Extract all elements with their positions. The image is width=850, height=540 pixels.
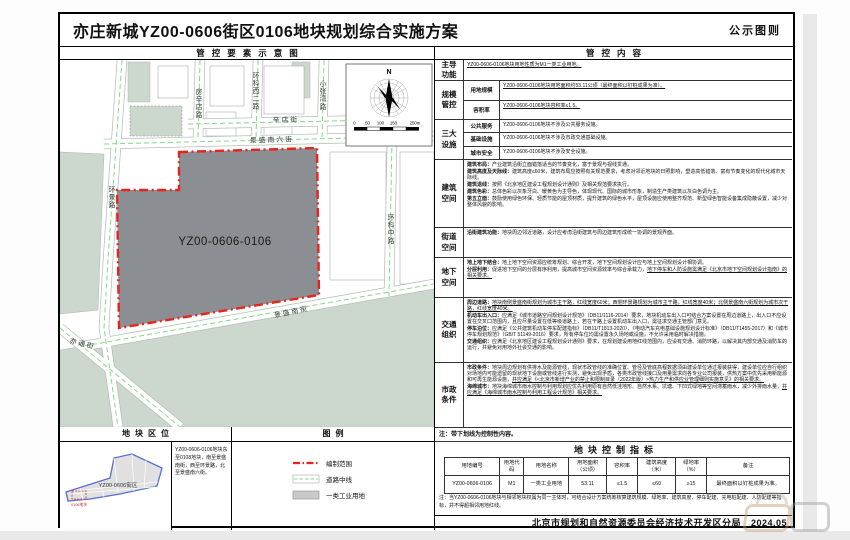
control-row-label: 建筑空间 [435,160,464,227]
control-elements-map: 050100150250m N 房辛店路环科西二路辛店街小张湾路景盛南六街环景路… [60,60,434,427]
location-panel-header: 地块区位 [60,427,232,441]
bottom-panel-headers: 地块区位 图例 [60,427,434,442]
bottom-panels: 0106地块 YZ00-0606街区 YZ00-0606-0106地块东至010… [60,442,434,530]
control-subrow: YZ00-0606-0106地块用地性质为M1一类工业用地。 [464,60,792,80]
control-row: 地下空间地上地下结合：地上地下空间资源应统筹规划、综合开发，地下空间规划设计应与… [435,258,792,298]
control-row-label: 主导功能 [435,60,464,80]
map-panel-header: 管控要素示意图 [60,47,434,60]
indicator-cell: ≥15 [676,476,707,494]
control-row-label: 规模管控 [435,81,464,119]
indicator-cell: YZ00-0606-0106 [445,476,500,494]
legend-item: 一类工业用地 [292,490,434,500]
indicator-col-header: 容积率 [607,458,638,476]
control-row: 建筑空间建筑布局：产业建筑沿街立面错落适当的节奏变化，富于景观与视线贯通。建筑高… [435,160,792,228]
control-row: 规模管控用地规模YZ00-0606-0106地块用地面积约53.11公顷（最终面… [435,81,792,120]
minimap-parcel-label: 0106地块 [71,502,87,507]
control-subrow: 城市安全YZ00-0606-0106地块不涉及安全设施。 [464,147,792,159]
north-label: N [386,69,391,76]
location-description: YZ00-0606-0106地块东至0108地块，南至景盛南街，西至环景路，北至… [172,442,232,530]
control-content-column: 管控内容 主导功能YZ00-0606-0106地块用地性质为M1一类工业用地。规… [434,47,792,530]
footer-bar: 北京市规划和自然资源委员会经济技术开发区分局2024.05 [435,515,792,530]
control-subrow-label: 公共服务 [464,120,500,132]
scan-edge-bottom [0,531,850,540]
control-text: 建筑布局：产业建筑沿街立面错落适当的节奏变化，富于景观与视线贯通。建筑高度及天际… [464,160,792,227]
map-svg: 050100150250m N 房辛店路环科西二路辛店街小张湾路景盛南六街环景路… [60,60,434,427]
location-minimap: 0106地块 YZ00-0606街区 [60,442,172,530]
scale-tick-label: 250m [410,121,421,126]
control-subrow-label: 容积率 [464,101,500,120]
street-label: 小张湾路 [320,79,327,111]
control-text: YZ00-0606-0106地块用地性质为M1一类工业用地。 [464,60,792,80]
red-dashdot-line-icon [292,458,320,468]
indicator-col-header: 用地代码 [500,458,524,476]
indicator-col-header: 建筑高度 （米） [638,458,676,476]
control-subrow: 公共服务YZ00-0606-0106地块不涉及公共服务设施。 [464,120,792,133]
location-minimap-svg: 0106地块 YZ00-0606街区 [60,442,171,530]
indicator-table-note: 注：当YZ00-0606-0106地块与相邻地块权属为同一主体时，可结合设计方案… [439,495,787,511]
control-row: 街道空间沿街建筑功能：地块周边邻近道路，设计应考虑沿街建筑与周边建筑形成统一协调… [435,228,792,258]
road-centerline-icon [292,474,320,484]
indicator-cell: 一类工业用地 [524,476,569,494]
control-subrow: 沿街建筑功能：地块周边邻近道路，设计应考虑沿街建筑与周边建筑形成统一协调的景观界… [464,228,792,257]
indicator-cell: 最终面积以钉桩成果为准。 [707,476,790,494]
control-row: 三大设施公共服务YZ00-0606-0106地块不涉及公共服务设施。基础设施YZ… [435,120,792,160]
sheet-type-label: 公示图则 [729,22,793,38]
scan-edge-right [803,14,817,540]
control-subrow: 地上地下结合：地上地下空间资源应统筹规划、综合开发，地下空间规划设计应与地上空间… [464,258,792,297]
issuing-agency: 北京市规划和自然资源委员会经济技术开发区分局 [532,518,741,528]
plan-sheet: 亦庄新城YZ00-0606街区0106地块规划综合实施方案 公示图则 管控要素示… [58,12,795,528]
legend-label: 道路中线 [326,474,352,484]
legend-panel-header: 图例 [232,427,434,441]
control-rows: 主导功能YZ00-0606-0106地块用地性质为M1一类工业用地。规模管控用地… [435,60,792,428]
indicator-cell: ≤1.5 [607,476,638,494]
control-text: 市政条件：地块周边规划有供排水及能源管线，现状市政管线的准确位置、管径及管底高程… [464,363,792,427]
map-column: 管控要素示意图 [60,47,434,530]
control-subrow: 周边道路：地块南侧景盛南街规划为城市主干路，红线宽度60米；西侧环景路规划为城市… [464,298,792,362]
control-row-label: 地下空间 [435,258,464,297]
control-subrow-label: 基础设施 [464,133,500,145]
control-subrow: 基础设施YZ00-0606-0106地块不涉及市政交通基础设施。 [464,133,792,146]
street-label: 环科中路 [388,214,395,245]
indicator-col-header: 用地编号 [445,458,500,476]
title-bar: 亦庄新城YZ00-0606街区0106地块规划综合实施方案 公示图则 [60,14,793,47]
minimap-district-label: YZ00-0606街区 [99,481,138,489]
control-text: YZ00-0606-0106地块用地面积约53.11公顷（最终面积以钉桩成果为准… [500,81,792,100]
control-text: YZ00-0606-0106地块容积率≤1.5。 [500,101,792,120]
control-panel-header: 管控内容 [435,47,792,60]
control-row-label: 三大设施 [435,120,464,159]
legend-item: 编制范围 [292,458,434,468]
control-row: 市政条件市政条件：地块周边规划有供排水及能源管线，现状市政管线的准确位置、管径及… [435,363,792,428]
control-row: 主导功能YZ00-0606-0106地块用地性质为M1一类工业用地。 [435,60,792,81]
street-label: 房辛店路 [196,87,203,119]
street-label: 环科西二路 [253,72,260,110]
control-text: 地上地下结合：地上地下空间资源应统筹规划、综合开发，地下空间规划设计应与地上空间… [464,258,792,297]
gray-fill-icon [292,490,320,500]
street-label: 环景路 [109,186,116,209]
scale-tick-label: 100 [377,121,385,126]
control-subrow: 建筑布局：产业建筑沿街立面错落适当的节奏变化，富于景观与视线贯通。建筑高度及天际… [464,160,792,227]
indicator-col-header: 用地面积 （公顷） [569,458,607,476]
control-text: YZ00-0606-0106地块不涉及公共服务设施。 [500,120,792,132]
parcel-label: YZ00-0606-0106 [178,236,271,248]
control-text: YZ00-0606-0106地块不涉及市政交通基础设施。 [500,133,792,145]
indicator-cell: 53.11 [569,476,607,494]
scale-bar [354,127,419,131]
control-text: YZ00-0606-0106地块不涉及安全设施。 [500,147,792,159]
indicator-row: YZ00-0606-0106M1一类工业用地53.11≤1.5≤60≥15最终面… [445,476,790,494]
indicator-cell: M1 [500,476,524,494]
issue-date: 2024.05 [751,518,787,528]
compass-box: 050100150250m N [346,64,432,146]
street-label: 辛店街 [273,115,300,124]
control-row-label: 交通组织 [435,298,464,362]
control-subrow: 用地规模YZ00-0606-0106地块用地面积约53.11公顷（最终面积以钉桩… [464,81,792,101]
legend-label: 一类工业用地 [326,490,365,500]
indicator-col-header: 绿地率 （%） [676,458,707,476]
indicator-cell: ≤60 [638,476,676,494]
control-text: 周边道路：地块南侧景盛南街规划为城市主干路，红线宽度60米；西侧环景路规划为城市… [464,298,792,362]
control-subrow: 容积率YZ00-0606-0106地块容积率≤1.5。 [464,101,792,120]
underline-note: 注：带下划线为控制性内容。 [435,428,792,442]
control-row: 交通组织周边道路：地块南侧景盛南街规划为城市主干路，红线宽度60米；西侧环景路规… [435,298,792,363]
control-subrow-label: 城市安全 [464,147,500,159]
indicator-table-title: 地块控制指标 [435,442,792,457]
control-subrow-label: 用地规模 [464,81,500,100]
indicator-table: 用地编号用地代码用地名称用地面积 （公顷）容积率建筑高度 （米）绿地率 （%）备… [444,457,790,494]
control-subrow: 市政条件：地块周边规划有供排水及能源管线，现状市政管线的准确位置、管径及管底高程… [464,363,792,427]
legend-items: 编制范围道路中线一类工业用地 [232,442,434,530]
legend-item: 道路中线 [292,474,434,484]
control-row-label: 街道空间 [435,228,464,257]
legend-label: 编制范围 [326,458,352,468]
indicator-col-header: 用地名称 [524,458,569,476]
control-row-label: 市政条件 [435,363,464,427]
scale-tick-label: 50 [365,121,370,126]
page-title: 亦庄新城YZ00-0606街区0106地块规划综合实施方案 [60,18,729,42]
indicator-col-header: 备注 [707,458,790,476]
scale-tick-label: 150 [390,121,398,126]
control-text: 沿街建筑功能：地块周边邻近道路，设计应考虑沿街建筑与周边建筑形成统一协调的景观界… [464,228,792,257]
